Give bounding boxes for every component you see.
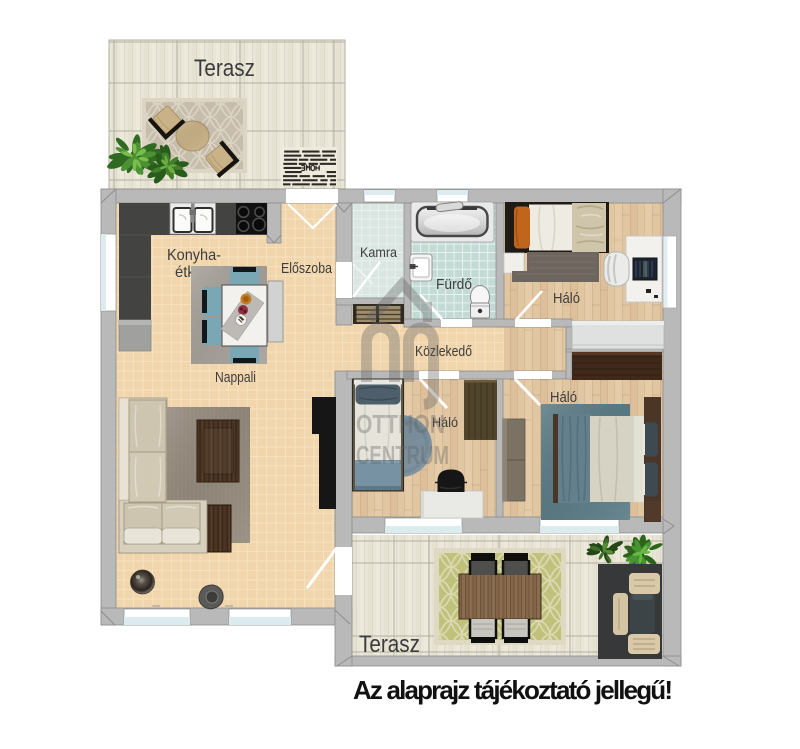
svg-text:Terasz: Terasz — [194, 55, 255, 82]
svg-text:CENTRUM: CENTRUM — [356, 440, 449, 470]
svg-text:Közlekedő: Közlekedő — [415, 343, 472, 360]
svg-text:Háló: Háló — [553, 290, 580, 307]
svg-text:Háló: Háló — [550, 389, 577, 406]
svg-text:Az alaprajz tájékoztató jelleg: Az alaprajz tájékoztató jellegű! — [353, 675, 673, 705]
svg-text:Előszoba: Előszoba — [281, 260, 333, 277]
svg-text:Terasz: Terasz — [359, 631, 420, 658]
svg-text:Nappali: Nappali — [215, 369, 256, 386]
svg-text:OTTHON: OTTHON — [356, 409, 445, 439]
svg-text:Kamra: Kamra — [360, 244, 397, 260]
svg-text:Fürdő: Fürdő — [436, 276, 472, 293]
svg-text:Konyha-: Konyha- — [167, 247, 221, 264]
